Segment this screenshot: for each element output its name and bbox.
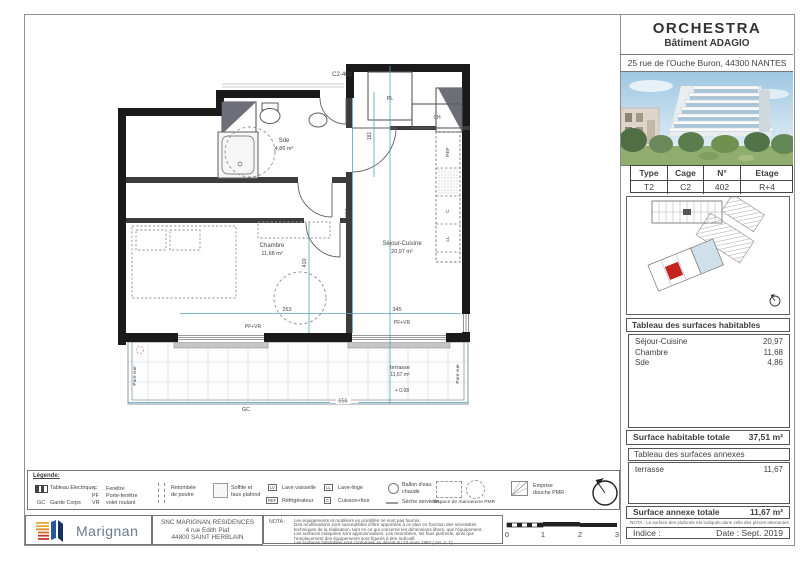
- legend-pmr-space-label: Espace de manoeuvre PMR: [434, 500, 495, 505]
- room-sde-name: Sde: [279, 138, 290, 144]
- terrasse-level: + 0.08: [395, 388, 409, 394]
- beam-icon: [158, 483, 159, 503]
- room-chambre-name: Chambre: [260, 243, 285, 249]
- legend-ballon-label: Ballon d'eau: [402, 482, 432, 488]
- annexes-nota: NOTA : La surface des plafonds est indiq…: [630, 520, 792, 525]
- pmr-space-circle-icon: [466, 480, 485, 499]
- nota-text: Les équipements et mobiliers en pointill…: [294, 519, 500, 546]
- svg-text:0: 0: [505, 530, 509, 539]
- towel-dryer-icon: [386, 502, 398, 504]
- svg-text:410: 410: [302, 258, 308, 267]
- project-title: ORCHESTRA: [622, 20, 792, 37]
- unit-table-header: Type: [631, 166, 668, 181]
- svg-text:263: 263: [282, 307, 291, 313]
- unit-table-header: Cage: [668, 166, 704, 181]
- appliance-ll: LL: [445, 236, 451, 242]
- gc-label: GC: [242, 407, 250, 413]
- cooktop-icon: C: [324, 497, 331, 504]
- water-heater-icon: [388, 483, 399, 494]
- legend-c-label: Cuisson+four: [338, 498, 370, 504]
- legend-lv-label: Lave vaisselle: [282, 485, 316, 491]
- legend-beam-label: Retombée: [171, 485, 196, 491]
- north-arrow-icon: [588, 475, 620, 507]
- window-left-label: PF+VR: [245, 324, 262, 330]
- surface-row: Séjour-Cuisine20,97: [629, 337, 789, 348]
- legend-pmr-shower-label: Emprise: [533, 483, 553, 489]
- nota-label: NOTA :: [269, 519, 286, 525]
- appliance-c: C: [445, 209, 451, 213]
- company-box: SNC MARIGNAN RESIDENCES 4 rue Edith Piaf…: [152, 515, 263, 545]
- shaft-entry: [436, 88, 462, 132]
- room-sejour-name: Séjour-Cuisine: [382, 241, 422, 247]
- dishwasher-icon: LV: [268, 484, 277, 491]
- window-right-label: PF+VR: [394, 320, 411, 326]
- fridge-icon: REF: [266, 497, 278, 504]
- surfaces-habitables-header: Tableau des surfaces habitables: [626, 318, 790, 332]
- surface-annexe-total: Surface annexe totale11,67 m²: [626, 506, 790, 519]
- legend-ll-label: Lave-linge: [338, 485, 363, 491]
- shutter-box-left: [174, 342, 268, 348]
- surface-row: Sde4,86: [629, 358, 789, 369]
- key-plan: [627, 197, 789, 314]
- svg-text:650: 650: [345, 208, 351, 217]
- legend-ref-label: Réfrigérateur: [282, 498, 313, 504]
- pmr-shower-icon: [511, 481, 528, 496]
- partitions: [126, 98, 470, 333]
- plan-sheet: C2-402 Sde 4,86 m² Chambre 11,68 m² Séjo…: [0, 0, 800, 566]
- brand-box: Marignan: [25, 515, 152, 545]
- unit-cage: C2: [668, 181, 704, 194]
- unit-label: C2-402: [332, 72, 352, 78]
- legend-abbr-gc-label: Garde Corps: [50, 500, 81, 506]
- unit-floor: R+4: [741, 181, 793, 194]
- terrace: [128, 342, 468, 404]
- keyplan-unit-cluster: [648, 239, 723, 291]
- company-address2: 44800 SAINT HERBLAIN: [153, 534, 262, 542]
- surface-row: Chambre11,68: [629, 348, 789, 359]
- legend-abbr-pf-label: Porte-fenêtre: [106, 493, 137, 499]
- company-address1: 4 rue Edith Piaf: [153, 527, 262, 535]
- svg-text:1: 1: [541, 530, 545, 539]
- indice-label: Indice :: [633, 528, 661, 538]
- pmr-circle-chambre: [274, 272, 326, 324]
- closet-pl-label: PL: [387, 96, 394, 102]
- surface-habitable-total-value: 37,51 m²: [749, 431, 783, 444]
- washer-icon: LL: [324, 484, 333, 491]
- building-photo: [621, 72, 793, 166]
- building-name: Bâtiment ADAGIO: [622, 38, 792, 49]
- pmr-space-rect-icon: [436, 481, 462, 498]
- title-divider: [620, 54, 793, 55]
- svg-text:3: 3: [615, 530, 619, 539]
- surface-habitable-total: Surface habitable totale37,51 m²: [626, 430, 790, 445]
- legend-abbr-f: F: [94, 486, 97, 492]
- legend-abbr-f-label: Fenêtre: [106, 486, 125, 492]
- unit-table: Type Cage N° Etage T2 C2 402 R+4: [630, 165, 793, 193]
- shutter-box-right: [348, 342, 450, 348]
- exterior-walls: [118, 64, 470, 345]
- legend-soffit-label: Soffite et: [231, 485, 252, 491]
- surfaces-habitables-list: Séjour-Cuisine20,97 Chambre11,68 Sde4,86: [628, 334, 790, 428]
- room-chambre-area: 11,68 m²: [261, 251, 282, 257]
- marignan-logo-icon: [36, 519, 70, 543]
- svg-text:181: 181: [367, 132, 373, 141]
- window-side: [462, 314, 470, 332]
- pare-vue-right: Pare vue: [455, 364, 461, 384]
- svg-text:345: 345: [392, 307, 401, 313]
- room-terrasse-area: 11,67 m²: [390, 372, 410, 378]
- unit-table-header: N°: [704, 166, 741, 181]
- window-right: [352, 333, 446, 342]
- legend-abbr-vr: VR: [92, 500, 100, 506]
- room-sejour-area: 20,97 m²: [391, 249, 413, 255]
- svg-text:2: 2: [578, 530, 582, 539]
- closet-ch-label: CH: [433, 115, 441, 121]
- surface-annexe-total-value: 11,67 m²: [750, 507, 783, 518]
- date-label: Date : Sept. 2019: [716, 528, 783, 538]
- nota-box: NOTA : Les équipements et mobiliers en p…: [263, 515, 503, 544]
- surface-row: terrasse11,67: [629, 465, 789, 476]
- svg-text:656: 656: [338, 399, 347, 405]
- surfaces-annexes-list: terrasse11,67: [628, 462, 790, 504]
- keyplan-north-icon: [770, 294, 780, 306]
- legend-electrical-label: Tableau Electrique: [50, 485, 94, 491]
- company-name: SNC MARIGNAN RESIDENCES: [153, 519, 262, 527]
- pare-vue-left: Pare vue: [132, 366, 138, 386]
- brand-name: Marignan: [76, 523, 138, 539]
- surfaces-annexes-header: Tableau des surfaces annexes: [628, 448, 790, 461]
- project-address: 25 rue de l'Ouche Buron, 44300 NANTES: [621, 58, 793, 68]
- legend-abbr-pf: PF: [92, 493, 99, 499]
- scale-bar: 0 1 2 3: [505, 518, 623, 542]
- soffit-icon: [213, 483, 228, 498]
- room-terrasse-name: terrasse: [390, 365, 410, 371]
- room-sde-area: 4,86 m²: [275, 146, 294, 152]
- main-building: [669, 86, 773, 136]
- electrical-panel-icon: [35, 485, 48, 493]
- legend-title: Légende:: [33, 473, 60, 479]
- window-left: [178, 333, 264, 342]
- legend: Légende: Tableau Electrique GC Garde Cor…: [27, 470, 620, 510]
- appliance-ref: REF: [445, 147, 451, 157]
- key-plan-box: [626, 196, 790, 315]
- bedroom-furniture: [132, 222, 330, 298]
- legend-abbr-vr-label: volet roulant: [106, 500, 135, 506]
- unit-number: 402: [704, 181, 741, 194]
- unit-table-header: Etage: [741, 166, 793, 181]
- beam-icon: [164, 483, 165, 503]
- revision-box: Indice : Date : Sept. 2019: [626, 527, 790, 539]
- unit-type: T2: [631, 181, 668, 194]
- legend-abbr-gc: GC: [37, 500, 45, 506]
